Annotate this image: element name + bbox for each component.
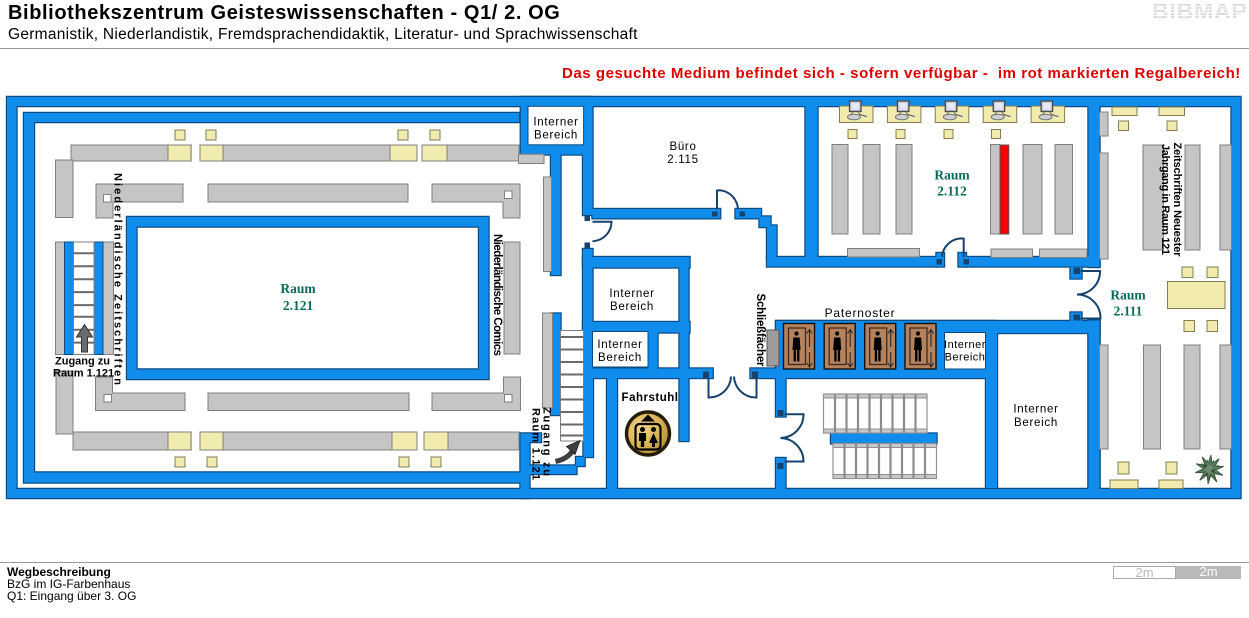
svg-text:Bereich: Bereich bbox=[534, 130, 578, 142]
svg-text:Interner: Interner bbox=[609, 288, 654, 300]
svg-text:Zugang zu: Zugang zu bbox=[55, 356, 110, 368]
svg-text:Raum: Raum bbox=[280, 281, 316, 296]
svg-text:2.112: 2.112 bbox=[937, 184, 967, 199]
svg-text:Raum: Raum bbox=[1110, 288, 1146, 303]
svg-text:Büro: Büro bbox=[669, 141, 696, 153]
svg-text:Raum 1.121: Raum 1.121 bbox=[530, 408, 542, 480]
svg-text:Raum 1.121: Raum 1.121 bbox=[53, 368, 114, 380]
svg-text:Paternoster: Paternoster bbox=[825, 306, 896, 320]
svg-text:Schließfächer: Schließfächer bbox=[754, 294, 766, 368]
svg-text:2.121: 2.121 bbox=[283, 298, 314, 313]
svg-text:2.111: 2.111 bbox=[1114, 304, 1143, 319]
svg-text:Interner: Interner bbox=[1013, 404, 1058, 416]
svg-text:2.115: 2.115 bbox=[667, 154, 698, 166]
svg-text:Interner: Interner bbox=[533, 117, 578, 129]
svg-text:Raum: Raum bbox=[934, 168, 970, 183]
svg-text:Bereich: Bereich bbox=[1014, 417, 1058, 429]
svg-text:Niederländische Comics: Niederländische Comics bbox=[491, 234, 503, 356]
svg-text:Bereich: Bereich bbox=[945, 352, 986, 364]
svg-text:Interner: Interner bbox=[944, 339, 986, 351]
svg-text:Zeitschriften Neuester: Zeitschriften Neuester bbox=[1171, 143, 1183, 258]
svg-text:Bereich: Bereich bbox=[610, 301, 654, 313]
svg-text:Fahrstuhl: Fahrstuhl bbox=[622, 392, 679, 404]
svg-text:Bereich: Bereich bbox=[598, 352, 642, 364]
svg-text:Interner: Interner bbox=[597, 339, 642, 351]
svg-text:Jahrgang in Raum 121: Jahrgang in Raum 121 bbox=[1159, 144, 1171, 255]
